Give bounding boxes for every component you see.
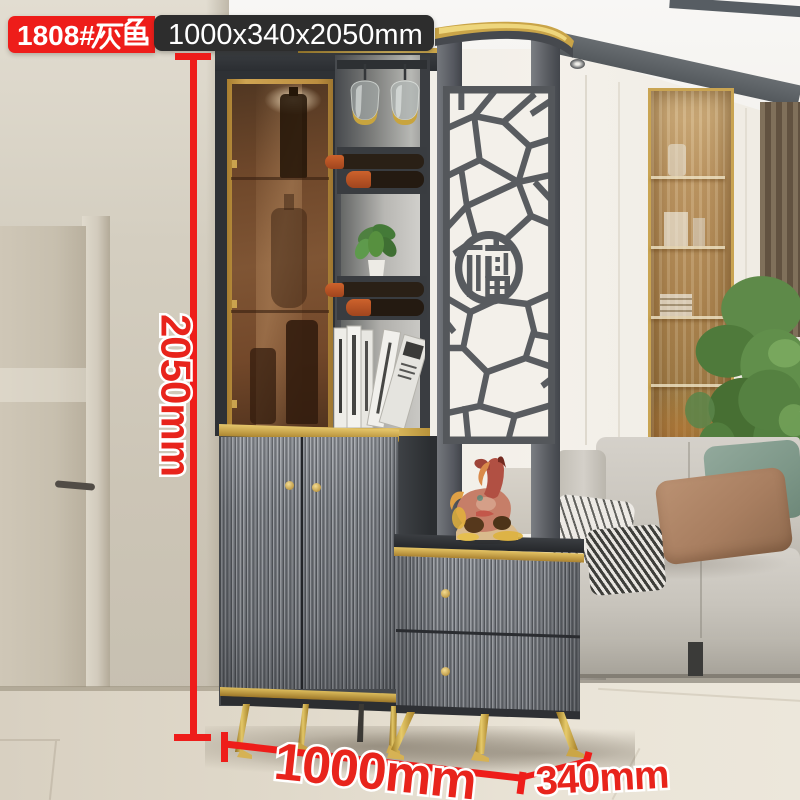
svg-text:2050mm: 2050mm	[153, 314, 200, 476]
svg-text:1808#: 1808#	[17, 20, 95, 51]
svg-text:1000mm: 1000mm	[271, 742, 478, 800]
svg-text:340mm: 340mm	[535, 753, 670, 800]
